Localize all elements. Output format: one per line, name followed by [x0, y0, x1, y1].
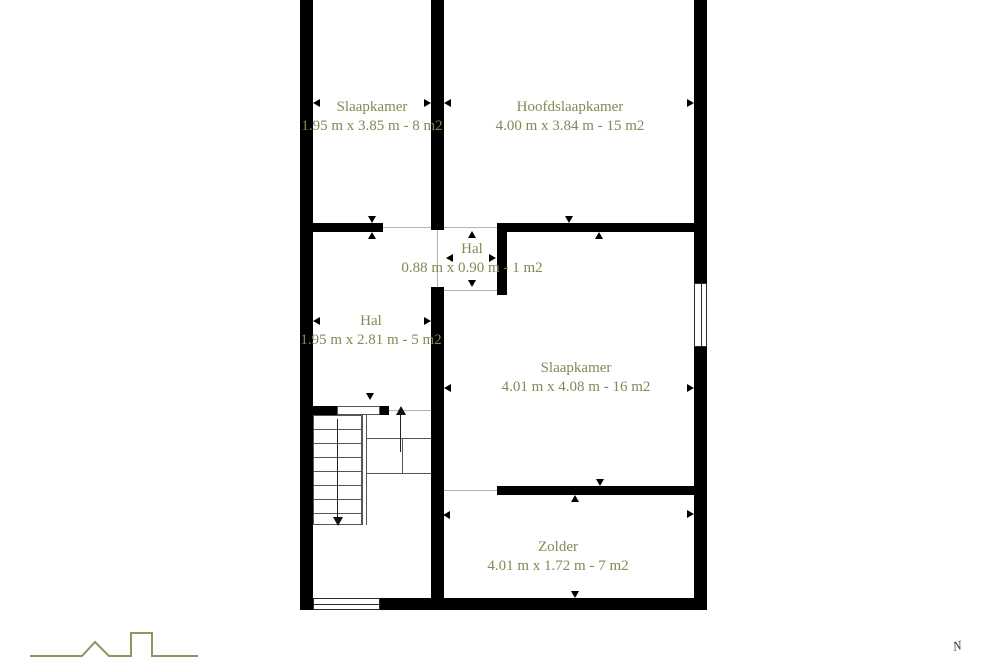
dim-arrow-icon	[571, 591, 579, 598]
wall-h-slaapkamer-bottom-left	[300, 223, 383, 232]
dim-arrow-icon	[596, 479, 604, 486]
room-dimensions: 4.01 m x 1.72 m - 7 m2	[487, 557, 628, 576]
room-label-slaapkamer-top: Slaapkamer 1.95 m x 3.85 m - 8 m2	[301, 98, 442, 136]
window-pane-line	[701, 284, 702, 346]
room-label-hal: Hal 1.95 m x 2.81 m - 5 m2	[300, 312, 441, 350]
room-name: Hal	[401, 240, 542, 259]
wall-outer-left	[300, 0, 313, 610]
opening-halklein-bottom	[444, 290, 497, 291]
house-skyline-logo-icon	[20, 625, 220, 660]
room-label-zolder: Zolder 4.01 m x 1.72 m - 7 m2	[487, 538, 628, 576]
stairs-rail	[362, 415, 367, 525]
room-dimensions: 4.00 m x 3.84 m - 15 m2	[496, 117, 645, 136]
dim-arrow-icon	[687, 384, 694, 392]
room-dimensions: 0.88 m x 0.90 m - 1 m2	[401, 259, 542, 278]
room-label-slaapkamer-rechts: Slaapkamer 4.01 m x 4.08 m - 16 m2	[502, 359, 651, 397]
dim-arrow-icon	[368, 232, 376, 239]
stair-entry-door	[337, 406, 380, 415]
dim-arrow-icon	[468, 280, 476, 287]
stairs-down-arrow-line	[337, 419, 338, 519]
window-pane-line	[314, 604, 379, 605]
dim-arrow-icon	[571, 495, 579, 502]
stairs-down-arrow-icon	[333, 517, 343, 526]
room-name: Hoofdslaapkamer	[496, 98, 645, 117]
room-dimensions: 1.95 m x 2.81 m - 5 m2	[300, 331, 441, 350]
wall-h-slaapkamer-rechts-bottom	[497, 486, 707, 495]
dim-arrow-icon	[366, 393, 374, 400]
dim-arrow-icon	[595, 232, 603, 239]
dim-arrow-icon	[443, 511, 450, 519]
dim-arrow-icon	[565, 216, 573, 223]
room-label-hoofdslaapkamer: Hoofdslaapkamer 4.00 m x 3.84 m - 15 m2	[496, 98, 645, 136]
wall-stub-stair-right	[380, 406, 389, 415]
room-name: Slaapkamer	[301, 98, 442, 117]
stairs-winder-line	[367, 438, 431, 439]
dim-arrow-icon	[687, 99, 694, 107]
room-name: Zolder	[487, 538, 628, 557]
opening-halklein-top	[444, 227, 497, 228]
north-compass-icon: N	[951, 637, 963, 654]
dim-arrow-icon	[444, 384, 451, 392]
wall-h-hoofdslaapkamer-bottom	[497, 223, 707, 232]
room-name: Slaapkamer	[502, 359, 651, 378]
stairs-winder-line	[402, 438, 403, 473]
room-name: Hal	[300, 312, 441, 331]
window-right-wall	[694, 283, 707, 347]
dim-arrow-icon	[444, 99, 451, 107]
stairs-winder-line	[367, 473, 431, 474]
room-dimensions: 1.95 m x 3.85 m - 8 m2	[301, 117, 442, 136]
dim-arrow-icon	[687, 510, 694, 518]
window-bottom-wall	[313, 598, 380, 610]
stairs-up-arrow-line	[400, 414, 401, 452]
opening-slaapkamer-top-door	[383, 227, 431, 228]
wall-stub-stair-left	[313, 406, 337, 415]
opening-zolder-door	[443, 490, 497, 491]
stairs-up-arrow-icon	[396, 406, 406, 415]
room-label-hal-klein: Hal 0.88 m x 0.90 m - 1 m2	[401, 240, 542, 278]
dim-arrow-icon	[368, 216, 376, 223]
room-dimensions: 4.01 m x 4.08 m - 16 m2	[502, 378, 651, 397]
floorplan-canvas: Slaapkamer 1.95 m x 3.85 m - 8 m2 Hoofds…	[0, 0, 1000, 660]
dim-arrow-icon	[468, 231, 476, 238]
